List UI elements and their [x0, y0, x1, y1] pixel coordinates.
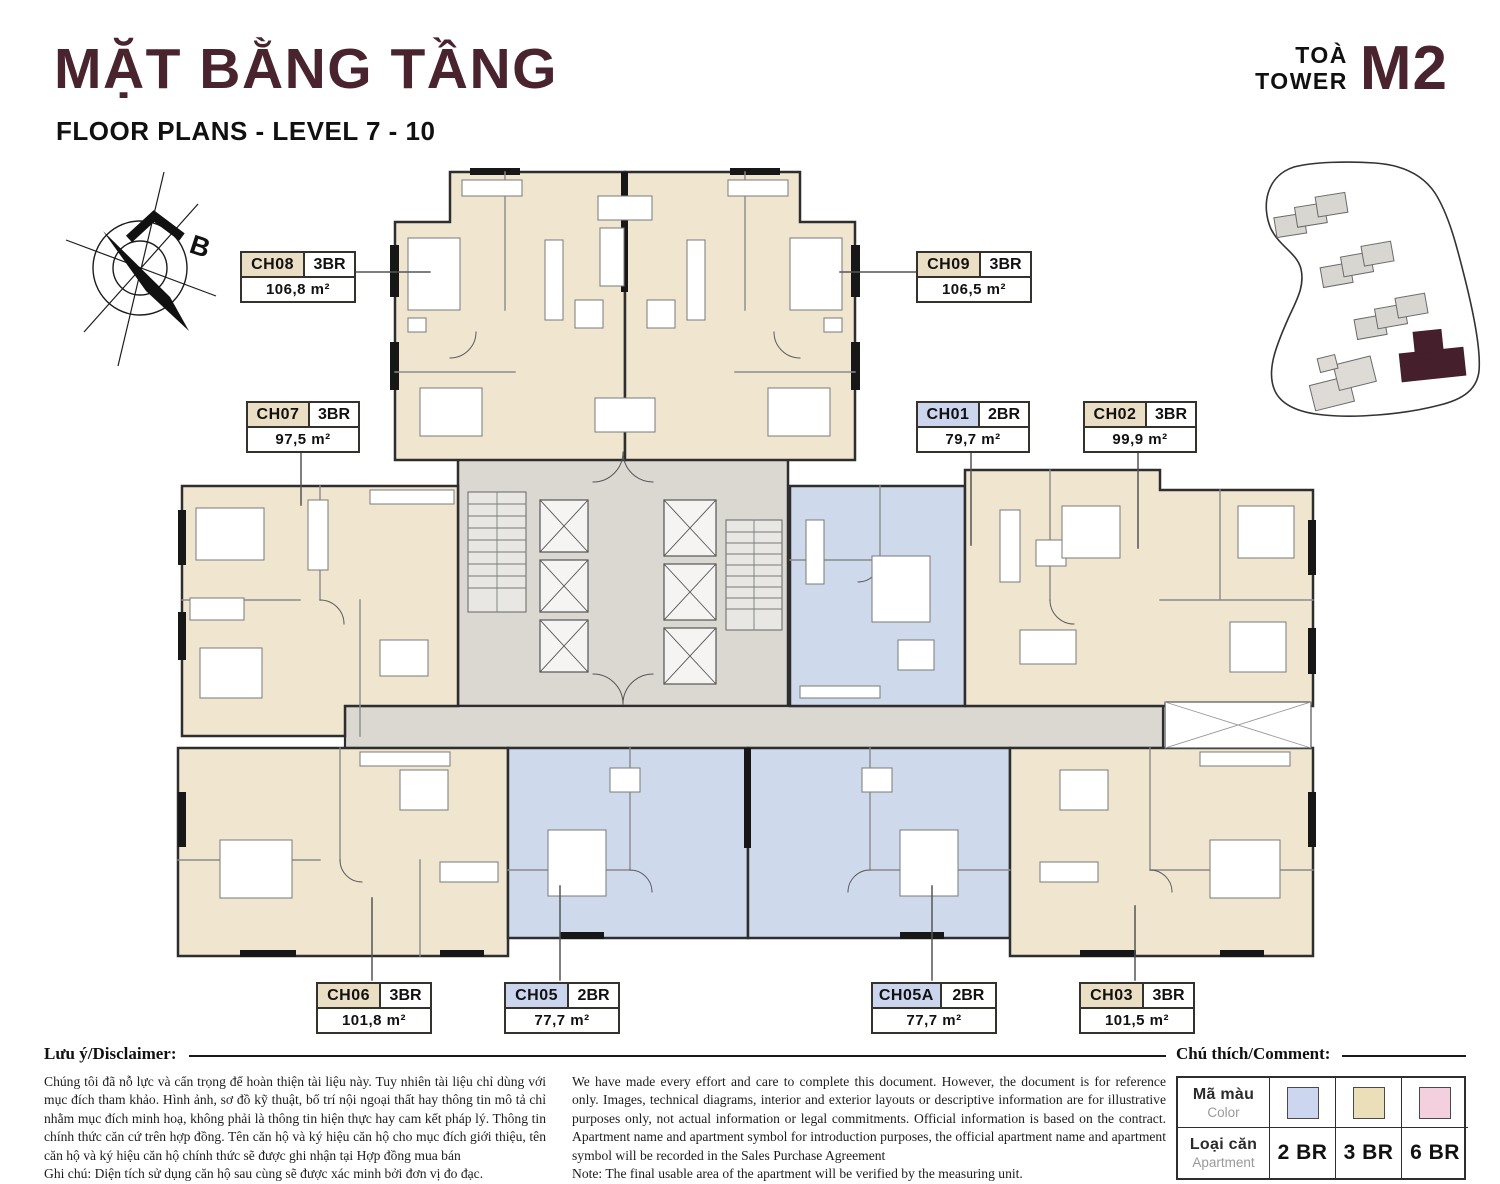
staircase-left	[468, 492, 526, 612]
legend-rule	[1342, 1055, 1466, 1057]
apartment-code: CH06	[318, 984, 381, 1007]
apartment-label-ch03: CH033BR 101,5 m²	[1079, 982, 1195, 1034]
apartment-label-ch05: CH052BR 77,7 m²	[504, 982, 620, 1034]
page-subtitle: FLOOR PLANS - LEVEL 7 - 10	[56, 116, 435, 147]
corridor-end-balcony	[1165, 702, 1311, 748]
apartment-area: 101,5 m²	[1081, 1009, 1193, 1032]
legend-swatch-6br	[1419, 1087, 1451, 1119]
apartment-area: 106,8 m²	[242, 278, 354, 301]
legend-type-2br: 2 BR	[1278, 1141, 1328, 1165]
legend-type-cell-2br: 2 BR	[1270, 1128, 1336, 1178]
apartment-label-ch07: CH073BR 97,5 m²	[246, 401, 360, 453]
page-title: MẶT BẰNG TẦNG	[54, 36, 558, 102]
apartment-type: 3BR	[381, 984, 430, 1007]
legend-swatch-cell-6br	[1402, 1078, 1468, 1128]
apartment-area: 106,5 m²	[918, 278, 1030, 301]
apartment-code: CH09	[918, 253, 981, 276]
apartment-label-ch08: CH083BR 106,8 m²	[240, 251, 356, 303]
apartment-label-ch06: CH063BR 101,8 m²	[316, 982, 432, 1034]
disclaimer-vi-note: Ghi chú: Diện tích sử dụng căn hộ sau cù…	[44, 1166, 483, 1181]
disclaimer-section: Lưu ý/Disclaimer: Chúng tôi đã nỗ lực và…	[44, 1044, 1166, 1184]
floor-plan-page: { "header": { "title": "MẶT BẰNG TẦNG", …	[0, 0, 1500, 1184]
apartment-type: 2BR	[942, 984, 995, 1007]
apartment-label-ch01: CH012BR 79,7 m²	[916, 401, 1030, 453]
apartment-area: 79,7 m²	[918, 428, 1028, 451]
apartment-type: 3BR	[310, 403, 358, 426]
legend-swatch-3br	[1353, 1087, 1385, 1119]
apartment-type: 3BR	[1147, 403, 1195, 426]
legend-type-label-cell: Loại căn Apartment	[1178, 1128, 1270, 1178]
disclaimer-english: We have made every effort and care to co…	[572, 1073, 1166, 1184]
apartment-code: CH05	[506, 984, 569, 1007]
legend-type-cell-3br: 3 BR	[1336, 1128, 1402, 1178]
tower-words: TOÀ TOWER	[1255, 43, 1348, 95]
disclaimer-en-note: Note: The final usable area of the apart…	[572, 1166, 1023, 1181]
staircase-right	[726, 520, 782, 630]
apartment-type: 2BR	[980, 403, 1028, 426]
apartment-code: CH05A	[873, 984, 942, 1007]
compass-north-label: B	[186, 229, 214, 264]
legend-type-6br: 6 BR	[1410, 1141, 1460, 1165]
site-map	[1266, 162, 1479, 416]
legend-color-label-en: Color	[1207, 1105, 1239, 1120]
disclaimer-vietnamese: Chúng tôi đã nỗ lực và cẩn trọng để hoàn…	[44, 1073, 546, 1184]
legend-type-label-vi: Loại căn	[1190, 1136, 1257, 1154]
apartment-label-ch05a: CH05A2BR 77,7 m²	[871, 982, 997, 1034]
apartment-area: 97,5 m²	[248, 428, 358, 451]
legend-color-label-cell: Mã màu Color	[1178, 1078, 1270, 1128]
floor-plan-svg: B	[0, 0, 1500, 1184]
legend-heading: Chú thích/Comment:	[1176, 1044, 1330, 1064]
legend-swatch-cell-3br	[1336, 1078, 1402, 1128]
legend-type-3br: 3 BR	[1344, 1141, 1394, 1165]
disclaimer-vi-text: Chúng tôi đã nỗ lực và cẩn trọng để hoàn…	[44, 1074, 546, 1163]
apartment-code: CH07	[248, 403, 310, 426]
disclaimer-columns: Chúng tôi đã nỗ lực và cẩn trọng để hoàn…	[44, 1073, 1166, 1184]
apartment-label-ch09: CH093BR 106,5 m²	[916, 251, 1032, 303]
apartment-area: 77,7 m²	[506, 1009, 618, 1032]
legend-heading-row: Chú thích/Comment:	[1176, 1044, 1466, 1064]
compass-icon: B	[66, 172, 216, 366]
tower-prefix-vi: TOÀ	[1255, 43, 1348, 69]
legend-color-label-vi: Mã màu	[1193, 1086, 1254, 1104]
legend-swatch-2br	[1287, 1087, 1319, 1119]
apartment-code: CH08	[242, 253, 305, 276]
apartment-code: CH03	[1081, 984, 1144, 1007]
disclaimer-rule	[189, 1055, 1167, 1057]
disclaimer-heading-row: Lưu ý/Disclaimer:	[44, 1044, 1166, 1064]
tower-code: M2	[1360, 38, 1448, 100]
legend-swatch-cell-2br	[1270, 1078, 1336, 1128]
legend-section: Chú thích/Comment: Mã màu Color Loại căn…	[1176, 1044, 1466, 1180]
tower-block: TOÀ TOWER M2	[1248, 38, 1448, 100]
apartment-type: 3BR	[305, 253, 354, 276]
legend-type-label-en: Apartment	[1192, 1155, 1254, 1170]
apartment-type: 3BR	[981, 253, 1030, 276]
apartment-code: CH02	[1085, 403, 1147, 426]
apartment-label-ch02: CH023BR 99,9 m²	[1083, 401, 1197, 453]
apartment-type: 2BR	[569, 984, 618, 1007]
disclaimer-en-text: We have made every effort and care to co…	[572, 1074, 1166, 1163]
apartment-area: 99,9 m²	[1085, 428, 1195, 451]
apartment-area: 77,7 m²	[873, 1009, 995, 1032]
legend-table: Mã màu Color Loại căn Apartment 2 BR 3 B…	[1176, 1076, 1466, 1180]
legend-type-cell-6br: 6 BR	[1402, 1128, 1468, 1178]
apartment-type: 3BR	[1144, 984, 1193, 1007]
apartment-area: 101,8 m²	[318, 1009, 430, 1032]
tower-prefix-en: TOWER	[1255, 69, 1348, 95]
apartment-code: CH01	[918, 403, 980, 426]
corridor-region	[345, 706, 1163, 748]
disclaimer-heading: Lưu ý/Disclaimer:	[44, 1044, 177, 1064]
